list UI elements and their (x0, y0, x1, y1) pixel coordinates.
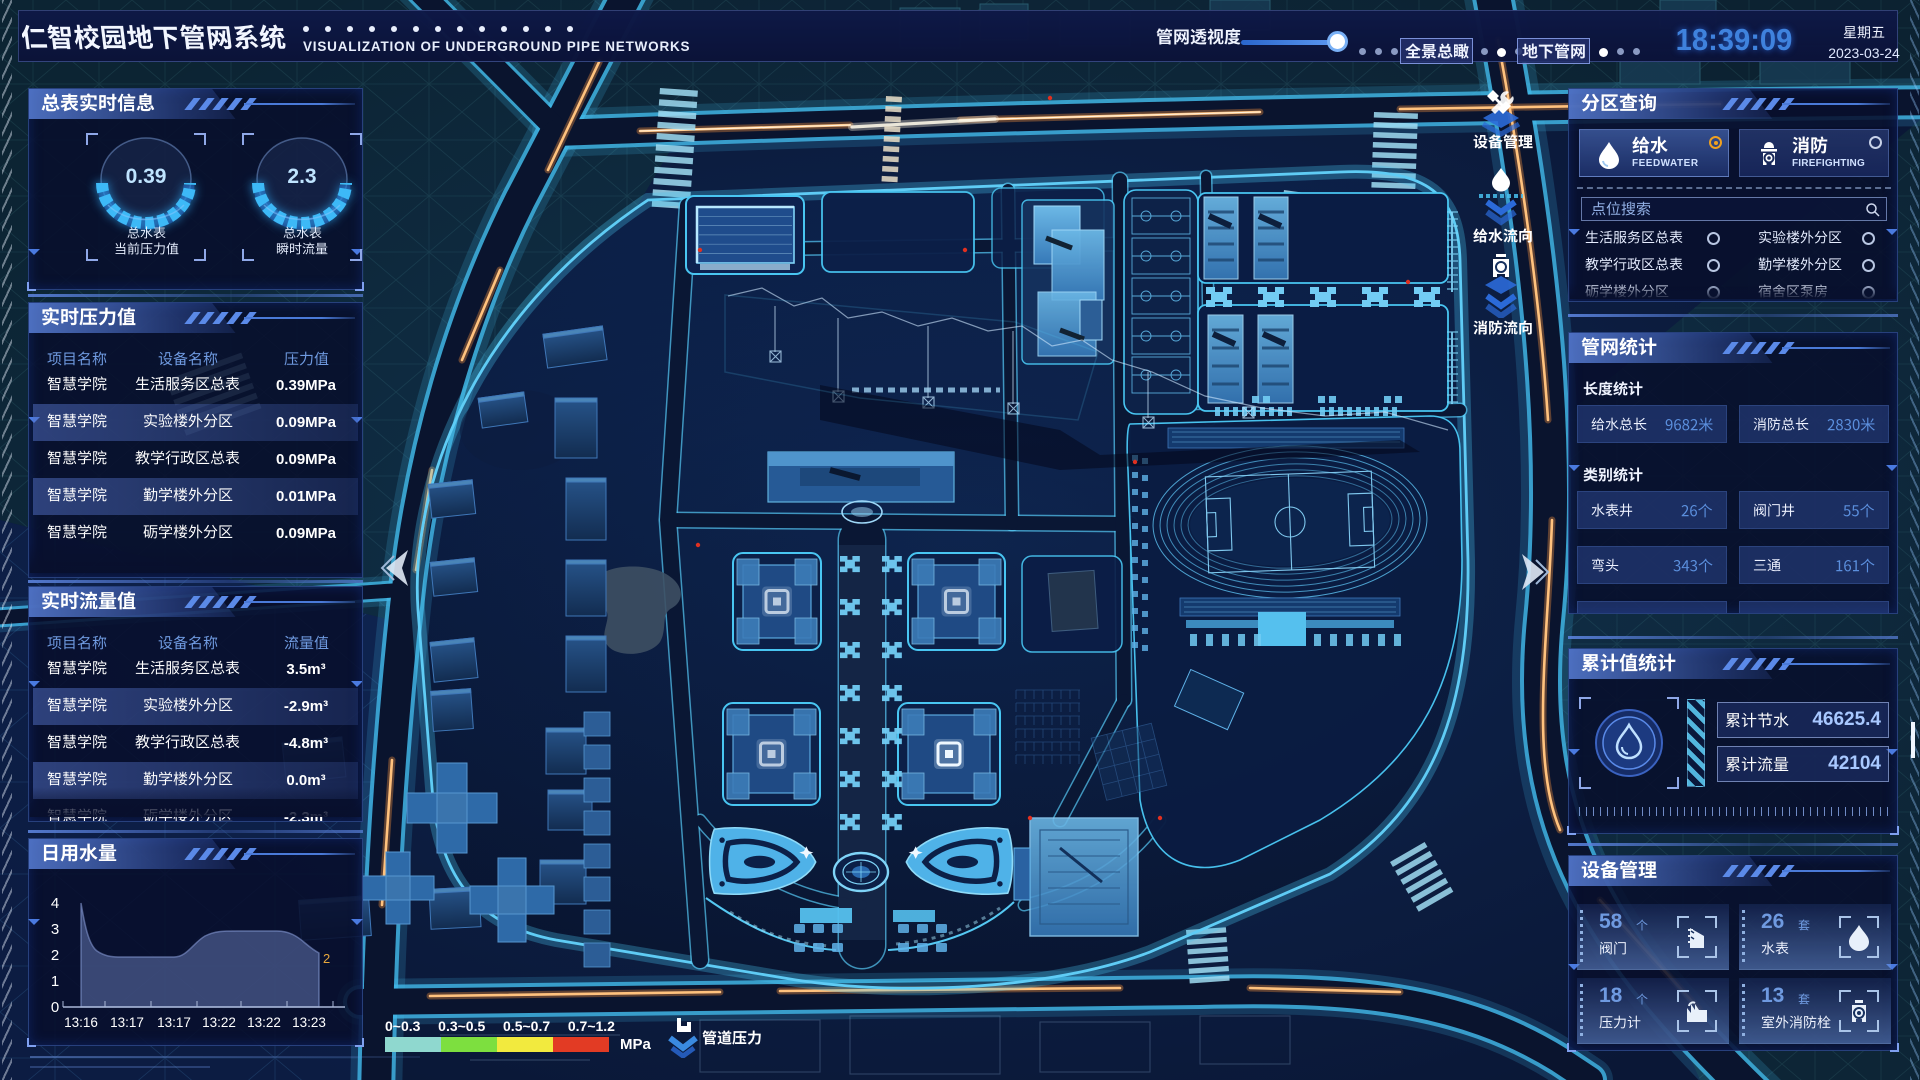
svg-text:0: 0 (51, 999, 59, 1016)
svg-text:0.39: 0.39 (126, 165, 167, 188)
svg-text:1: 1 (51, 973, 59, 990)
svg-text:13:17: 13:17 (110, 1015, 144, 1030)
svg-text:2: 2 (51, 947, 59, 964)
svg-text:2: 2 (323, 951, 330, 966)
svg-text:13:22: 13:22 (247, 1015, 281, 1030)
svg-text:13:23: 13:23 (292, 1015, 326, 1030)
svg-text:13:17: 13:17 (157, 1015, 191, 1030)
svg-text:3: 3 (51, 921, 59, 938)
svg-text:2.3: 2.3 (287, 165, 316, 188)
svg-text:13:22: 13:22 (202, 1015, 236, 1030)
svg-text:13:16: 13:16 (64, 1015, 98, 1030)
svg-text:4: 4 (51, 895, 59, 912)
